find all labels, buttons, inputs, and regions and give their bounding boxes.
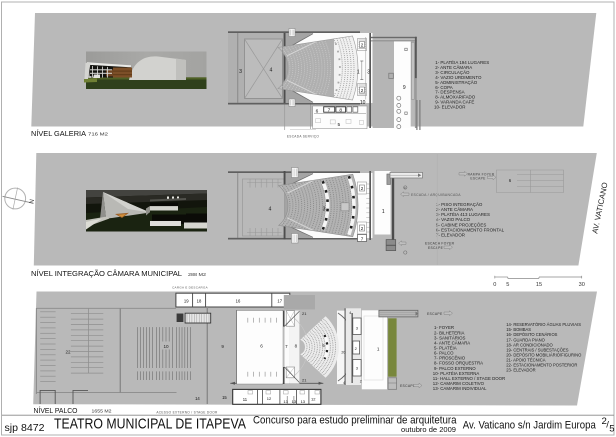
svg-text:16: 16 — [236, 298, 241, 303]
svg-text:22: 22 — [65, 350, 71, 355]
svg-text:outubro de 2009: outubro de 2009 — [401, 425, 456, 434]
svg-text:1: 1 — [382, 209, 385, 215]
svg-text:14: 14 — [195, 396, 200, 401]
svg-text:ESCADA SERVIÇO: ESCADA SERVIÇO — [287, 134, 320, 138]
svg-text:1: 1 — [357, 69, 360, 75]
svg-text:288 M2: 288 M2 — [188, 272, 207, 277]
svg-text:9: 9 — [221, 344, 224, 349]
svg-text:9: 9 — [403, 85, 406, 91]
svg-text:5: 5 — [506, 282, 509, 288]
svg-text:7: 7 — [328, 107, 331, 113]
svg-text:21: 21 — [302, 378, 307, 383]
svg-text:716 M2: 716 M2 — [88, 132, 109, 137]
svg-text:10: 10 — [360, 100, 366, 106]
svg-text:CARGA E DESCARGA: CARGA E DESCARGA — [172, 286, 208, 290]
svg-text:NÍVEL INTEGRAÇÃO CÂMARA MUNICI: NÍVEL INTEGRAÇÃO CÂMARA MUNICIPAL — [31, 269, 182, 278]
svg-text:Av. Vaticano s/n Jardim Europa: Av. Vaticano s/n Jardim Europa — [463, 420, 597, 432]
svg-text:1655 M2: 1655 M2 — [92, 409, 113, 414]
svg-text:15: 15 — [222, 395, 227, 400]
svg-text:5: 5 — [609, 424, 614, 435]
svg-text:13: 13 — [292, 399, 297, 404]
svg-text:13: 13 — [283, 399, 288, 404]
svg-text:19: 19 — [184, 298, 189, 303]
svg-text:ACESSO EXTERNO / STAGE DOOR: ACESSO EXTERNO / STAGE DOOR — [156, 410, 218, 414]
svg-text:ESCADA / ARQUIBANCADA: ESCADA / ARQUIBANCADA — [411, 193, 461, 197]
svg-text:30: 30 — [579, 282, 585, 288]
svg-text:11: 11 — [243, 397, 248, 402]
svg-text:NÍVEL GALERIA: NÍVEL GALERIA — [31, 129, 86, 138]
svg-text:17: 17 — [277, 298, 282, 303]
svg-text:12: 12 — [267, 396, 272, 401]
svg-text:20: 20 — [341, 351, 345, 355]
svg-text:6: 6 — [260, 344, 263, 349]
svg-text:18: 18 — [197, 298, 202, 303]
svg-text:NÍVEL PALCO: NÍVEL PALCO — [34, 406, 78, 415]
svg-text:12: 12 — [311, 397, 316, 402]
svg-text:C: C — [404, 186, 406, 190]
svg-text:2: 2 — [361, 186, 364, 191]
svg-text:10: 10 — [163, 344, 169, 349]
svg-text:8: 8 — [339, 107, 342, 113]
svg-text:4: 4 — [343, 381, 345, 385]
svg-text:4: 4 — [270, 68, 273, 74]
svg-text:ESCAPE: ESCAPE — [428, 246, 444, 250]
svg-text:13: 13 — [301, 399, 306, 404]
svg-text:ESCAPE: ESCAPE — [427, 312, 443, 316]
svg-text:2: 2 — [361, 226, 364, 231]
svg-text:ESCAPE: ESCAPE — [470, 177, 486, 181]
svg-text:3: 3 — [323, 206, 326, 212]
svg-text:0: 0 — [493, 282, 496, 288]
svg-text:TEATRO MUNICIPAL DE ITAPEVA: TEATRO MUNICIPAL DE ITAPEVA — [54, 416, 246, 433]
svg-text:1: 1 — [377, 347, 380, 352]
svg-text:sjp 8472: sjp 8472 — [5, 423, 45, 434]
svg-text:5: 5 — [337, 122, 340, 128]
svg-text:15: 15 — [536, 282, 542, 288]
svg-text:3: 3 — [239, 69, 242, 75]
svg-text:21: 21 — [302, 311, 307, 316]
svg-text:2: 2 — [361, 43, 364, 48]
svg-text:4: 4 — [349, 311, 351, 315]
svg-text:ESCADA FOYER: ESCADA FOYER — [425, 242, 455, 246]
svg-text:4: 4 — [269, 207, 272, 213]
svg-text:2: 2 — [361, 88, 364, 93]
svg-text:7: 7 — [361, 236, 364, 241]
